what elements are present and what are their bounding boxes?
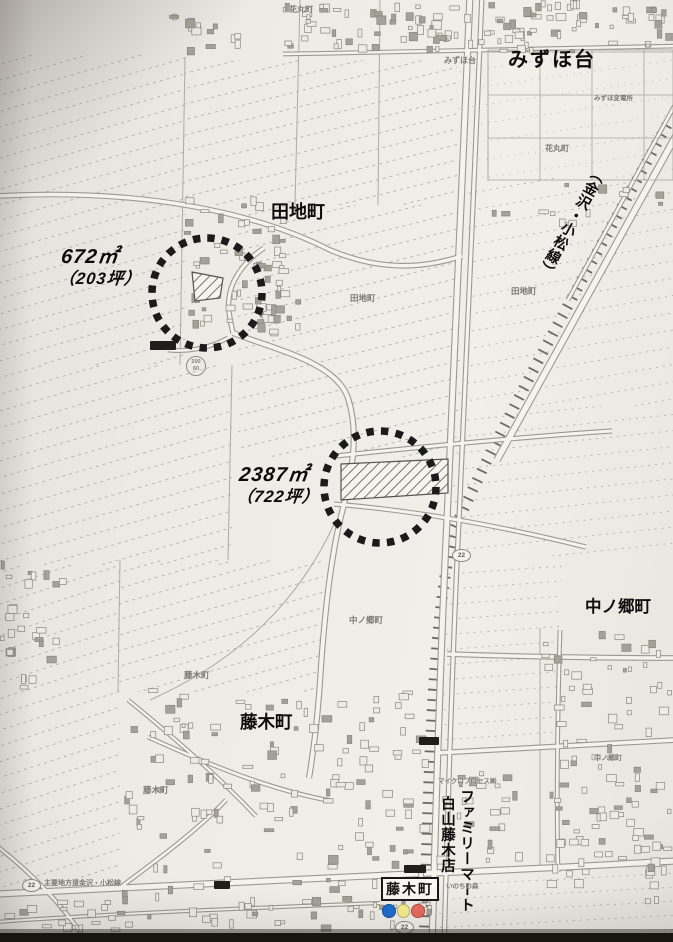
photo-edge — [0, 933, 673, 942]
map-small-label: 主要地方道金沢・小松線 — [44, 880, 121, 887]
district-label-tajicho: 田地町 — [271, 203, 325, 222]
district-label-fujikicho: 藤木町 — [240, 713, 293, 731]
map-small-label: 花丸町 — [545, 145, 569, 153]
parcel-annotation-2: 2387㎡ （722坪） — [235, 464, 323, 506]
map-marker — [150, 341, 176, 350]
map-small-label: 藤木町 — [143, 786, 169, 795]
map-marker — [404, 865, 426, 873]
field-parcel-lines — [0, 0, 406, 472]
map-photo: みずほ台 田地町 中ノ郷町 藤木町 672㎡ （203坪） 2387㎡ （722… — [0, 0, 673, 942]
parcel-annotation-1: 672㎡ （203坪） — [57, 246, 145, 288]
road — [148, 737, 332, 801]
signal-light-yellow — [397, 904, 411, 918]
map-small-label: 中ノ郷町 — [349, 616, 383, 625]
district-label-nakanogocho: 中ノ郷町 — [585, 599, 651, 616]
signal-intersection-label: 藤木町 — [381, 877, 439, 901]
store-label-line1: ファミリーマート — [456, 789, 477, 911]
signal-light-blue — [382, 904, 396, 918]
parcel-2-area-tsubo: （722坪） — [235, 488, 320, 506]
benchmark-bottom: 60 — [193, 366, 199, 373]
map-small-label: みずほ変電所 — [594, 96, 633, 103]
map-small-label: 藤木町 — [184, 671, 210, 680]
district-label-mizuhodai: みずほ台 — [508, 50, 596, 71]
traffic-signal-icon — [382, 904, 425, 918]
benchmark-marker: 200 60 — [186, 356, 206, 376]
signal-light-red — [411, 904, 425, 918]
map-small-label: みずほ台 — [444, 57, 476, 65]
map-marker — [419, 737, 439, 745]
map-small-label: 田地町 — [350, 294, 376, 303]
building-blocks — [1, 0, 673, 932]
subject-parcel-1 — [192, 272, 223, 301]
map-small-label: いのちの森 — [446, 884, 479, 891]
benchmark-top: 200 — [191, 359, 200, 366]
map-marker — [214, 881, 230, 889]
field-parcel-lines — [0, 259, 375, 662]
store-label-line2: 白山藤木店 — [437, 796, 458, 886]
map-small-label: マイクロプロセス㈱ — [438, 779, 496, 786]
map-small-label: 中ノ郷町 — [594, 755, 622, 762]
map-small-label: 花丸町 — [289, 6, 313, 14]
parcel-1-area-m2: 672㎡ — [60, 246, 146, 268]
route-shield: 22 — [452, 549, 471, 562]
route-shield: 22 — [22, 879, 41, 892]
cadastral-map-drawing — [0, 0, 673, 942]
map-small-label: 田地町 — [511, 287, 537, 296]
parcel-1-area-tsubo: （203坪） — [57, 270, 142, 288]
parcel-2-area-m2: 2387㎡ — [238, 464, 324, 486]
